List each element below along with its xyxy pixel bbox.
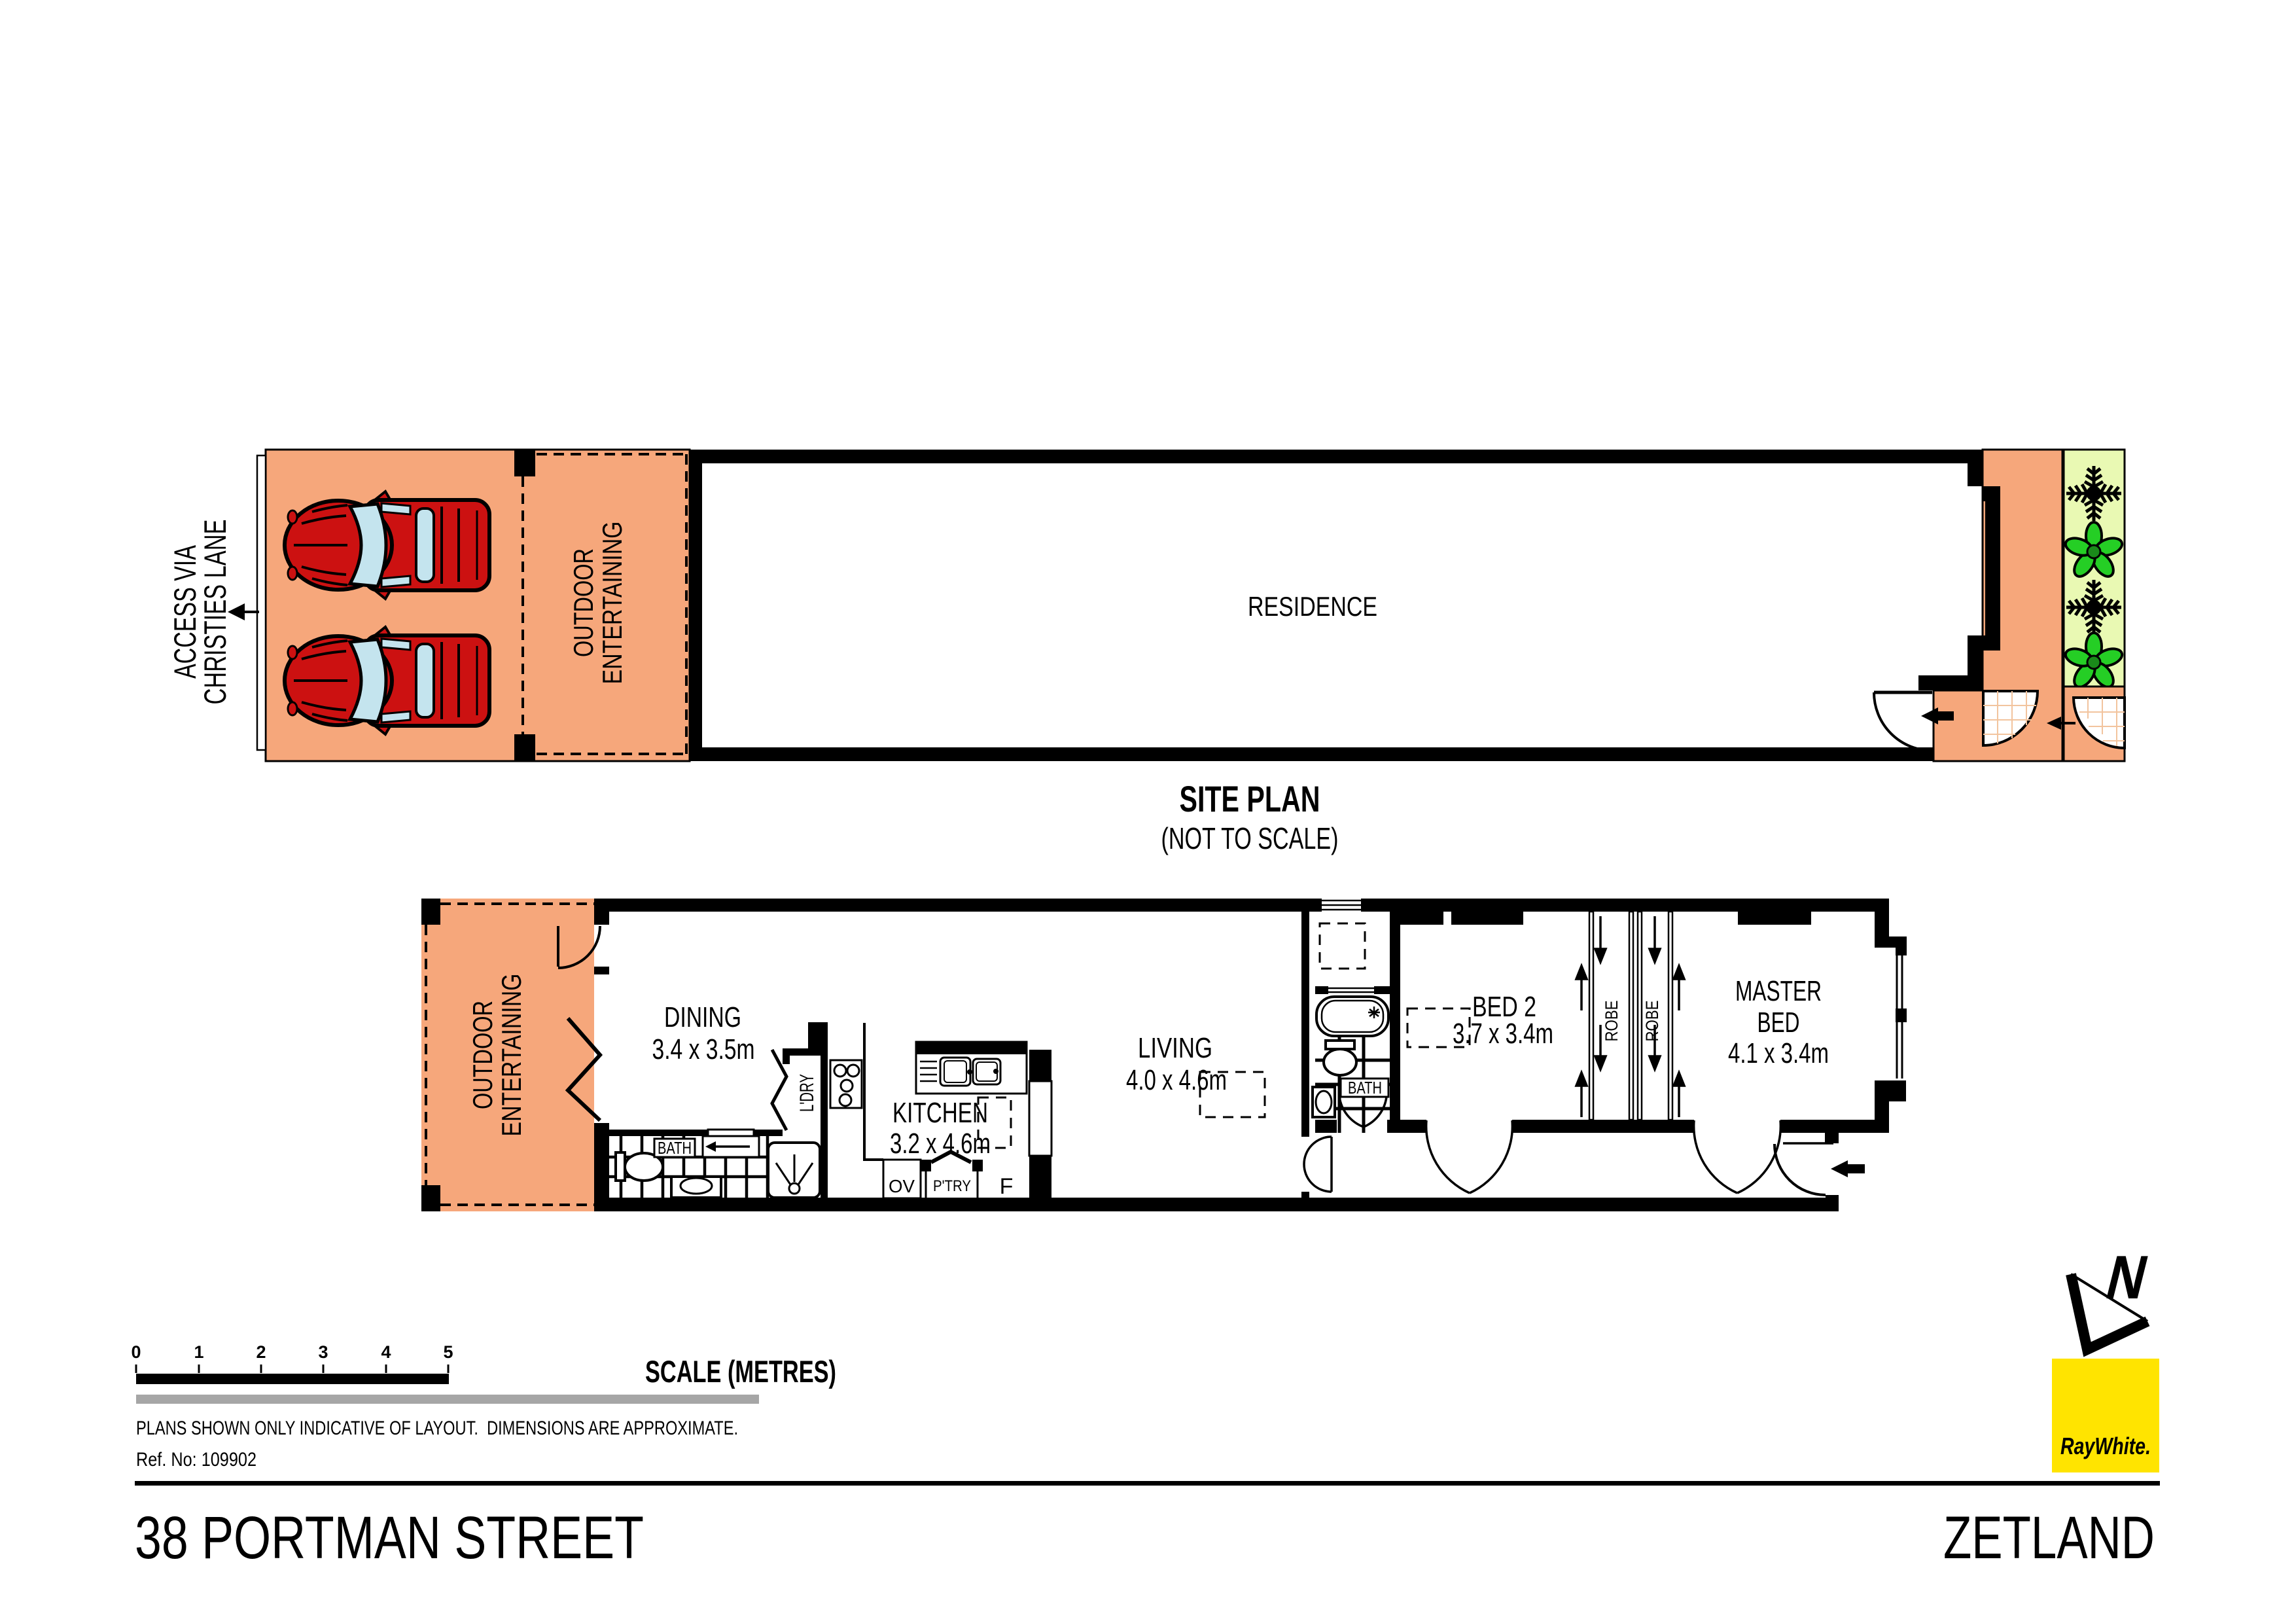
svg-text:2: 2 [256,1342,266,1362]
svg-text:ROBE: ROBE [1602,1001,1621,1042]
svg-text:BED: BED [1757,1007,1800,1039]
svg-text:3.4 x 3.5m: 3.4 x 3.5m [652,1033,755,1065]
svg-text:ENTERTAINING: ENTERTAINING [597,522,627,685]
svg-text:CHRISTIES LANE: CHRISTIES LANE [198,520,232,705]
svg-text:BATH: BATH [1348,1078,1382,1097]
svg-text:SCALE (METRES): SCALE (METRES) [645,1354,836,1389]
svg-text:PLANS SHOWN ONLY INDICATIVE OF: PLANS SHOWN ONLY INDICATIVE OF LAYOUT. D… [136,1418,738,1439]
svg-text:5: 5 [443,1342,453,1362]
svg-text:BATH: BATH [658,1138,692,1158]
svg-text:L'DRY: L'DRY [796,1074,818,1112]
svg-text:4.0 x 4.6m: 4.0 x 4.6m [1126,1064,1227,1096]
svg-text:Ref. No: 109902: Ref. No: 109902 [136,1449,256,1471]
svg-text:KITCHEN: KITCHEN [892,1097,988,1129]
svg-text:ZETLAND: ZETLAND [1943,1505,2155,1571]
svg-text:SITE PLAN: SITE PLAN [1180,778,1320,819]
svg-text:38 PORTMAN STREET: 38 PORTMAN STREET [135,1505,644,1571]
svg-text:(NOT TO SCALE): (NOT TO SCALE) [1161,821,1339,855]
svg-text:DINING: DINING [664,1001,741,1033]
svg-text:LIVING: LIVING [1138,1032,1212,1064]
svg-text:P'TRY: P'TRY [933,1177,971,1195]
svg-text:4.1 x 3.4m: 4.1 x 3.4m [1728,1037,1829,1069]
svg-text:MASTER: MASTER [1735,975,1822,1007]
svg-text:RayWhite.: RayWhite. [2060,1433,2151,1459]
svg-text:3: 3 [318,1342,328,1362]
svg-text:0: 0 [131,1342,141,1362]
svg-text:ROBE: ROBE [1642,1001,1662,1042]
svg-text:RESIDENCE: RESIDENCE [1248,591,1377,622]
svg-text:ENTERTAINING: ENTERTAINING [496,974,527,1137]
svg-text:4: 4 [381,1342,391,1362]
svg-text:N: N [2100,1243,2155,1311]
svg-text:3.7 x 3.4m: 3.7 x 3.4m [1453,1018,1553,1050]
svg-text:1: 1 [194,1342,203,1362]
svg-text:OV: OV [889,1176,915,1196]
svg-text:3.2 x 4.6m: 3.2 x 4.6m [890,1128,991,1160]
svg-text:F: F [1000,1174,1014,1199]
svg-text:OUTDOOR: OUTDOOR [568,548,599,657]
svg-text:OUTDOOR: OUTDOOR [467,1001,498,1109]
